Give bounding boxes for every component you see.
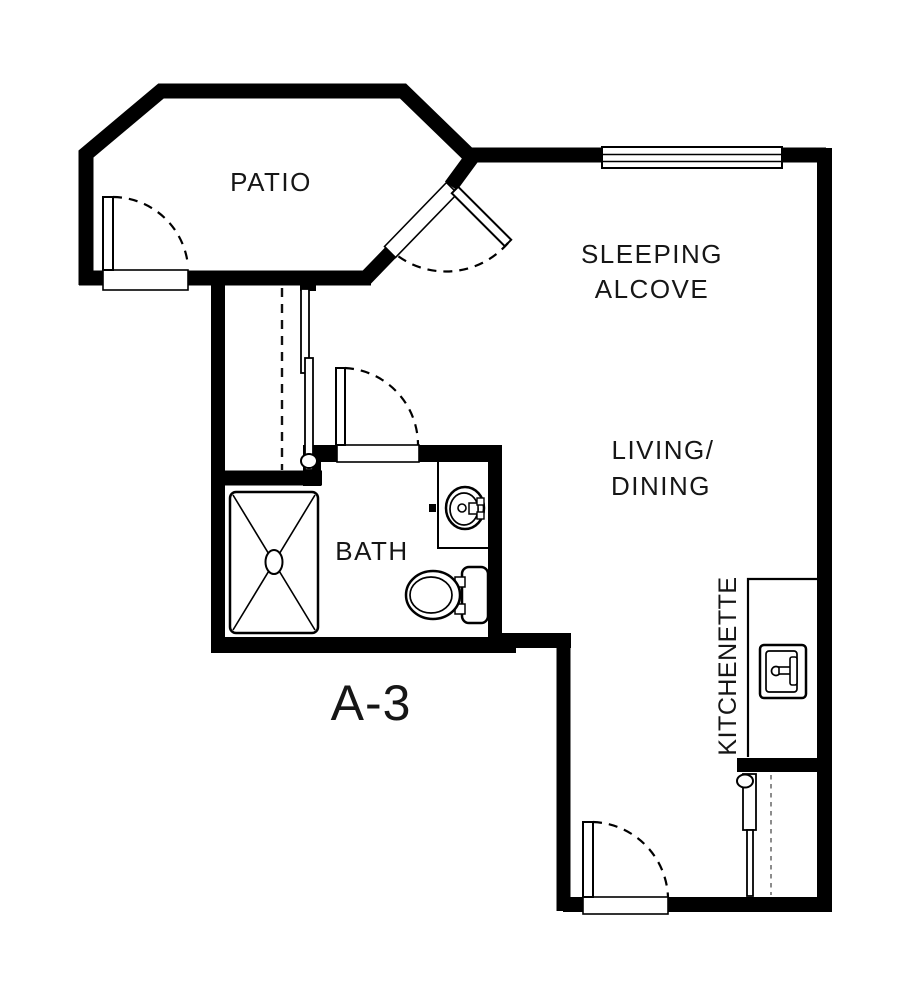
unit-label: A-3 — [331, 675, 412, 731]
corridor-closet — [282, 288, 317, 470]
patio-left-door-leaf — [103, 197, 113, 270]
sleeping-alcove-label-line2: ALCOVE — [595, 274, 710, 304]
floor-plan: PATIO SLEEPING ALCOVE LIVING/ DINING BAT… — [0, 0, 908, 998]
patio-label: PATIO — [230, 167, 312, 197]
patio-left-door-threshold — [103, 270, 188, 290]
bath-door-leaf — [336, 368, 345, 445]
entry-closet-handle — [737, 775, 753, 788]
patio-angled-door-leaf — [452, 187, 511, 246]
patio-angled-door-threshold — [385, 183, 458, 258]
entry-door-threshold — [583, 897, 668, 914]
bath-label: BATH — [335, 536, 408, 566]
entry-door-arc — [593, 822, 668, 897]
vanity-sink — [429, 461, 496, 548]
closet-door-handle — [301, 454, 317, 468]
toilet — [406, 567, 488, 623]
living-dining-label-line1: LIVING/ — [612, 435, 715, 465]
kitchenette-area — [748, 579, 817, 757]
sleeping-alcove-label-line1: SLEEPING — [581, 239, 723, 269]
patio-angled-door-arc — [394, 243, 508, 271]
bath-door-arc — [345, 368, 418, 445]
shower — [230, 492, 318, 633]
kitchenette-label: KITCHENETTE — [714, 576, 742, 755]
entry-door-leaf — [583, 822, 593, 897]
kitchen-sink — [760, 645, 806, 698]
living-dining-label-line2: DINING — [611, 471, 711, 501]
entry-closet-panel-2 — [747, 830, 753, 896]
bath-door-threshold — [337, 445, 419, 462]
patio-left-door-arc — [113, 197, 188, 266]
entry-closet — [737, 774, 771, 896]
alcove-window — [602, 147, 782, 168]
floor-plan-svg: PATIO SLEEPING ALCOVE LIVING/ DINING BAT… — [0, 0, 908, 998]
